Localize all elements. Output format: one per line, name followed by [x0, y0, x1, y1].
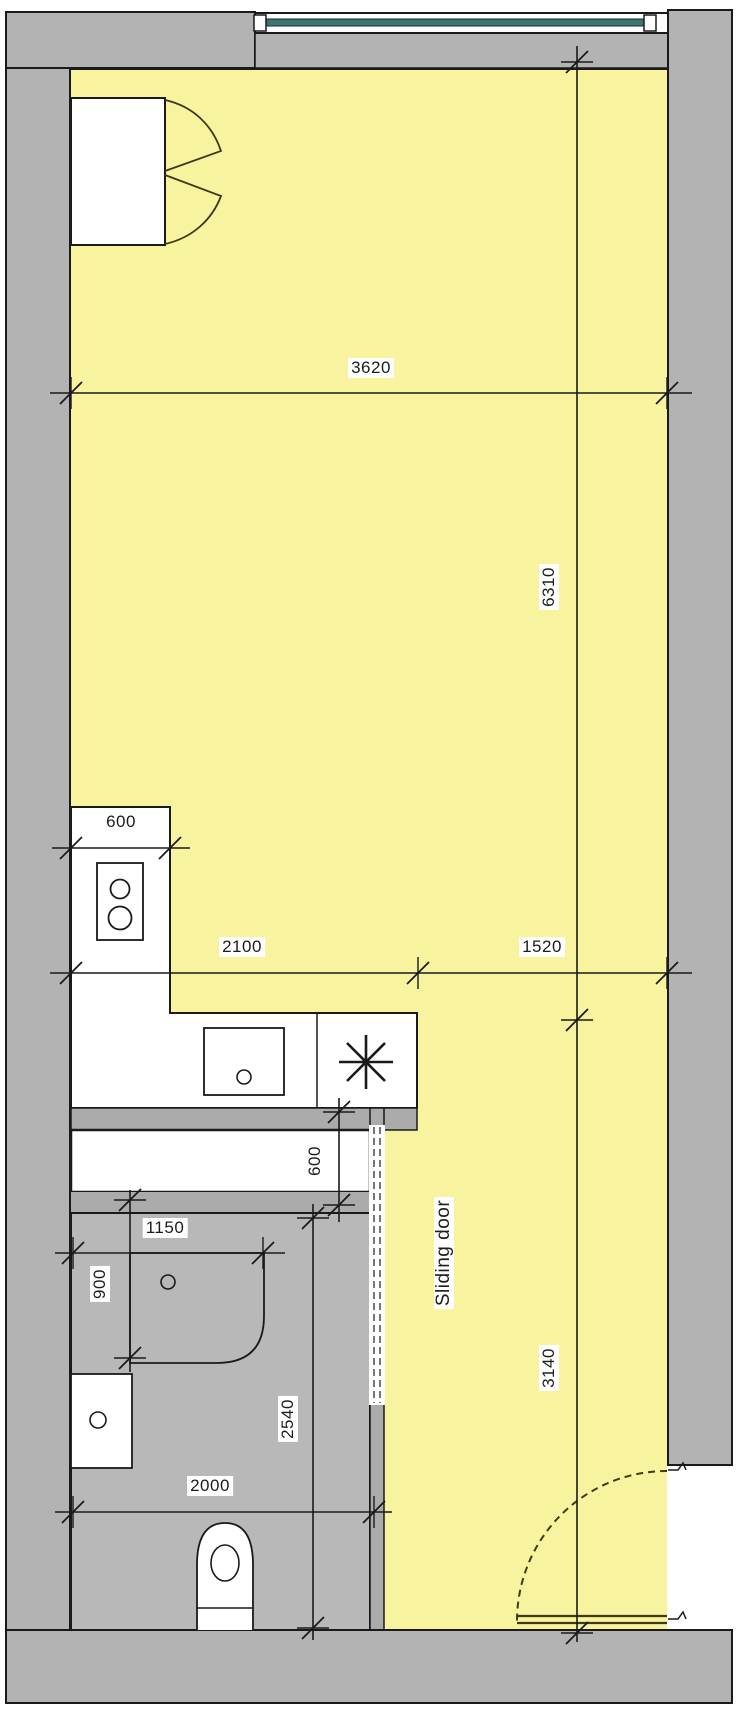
dim-room-width: 3620	[348, 358, 394, 378]
top-wall	[6, 12, 255, 68]
dim-bathroom-length: 2540	[278, 1396, 298, 1442]
floor-plan: 3620 6310 600 2100 1520 600 1150 900 254…	[0, 0, 740, 1710]
door-jamb-marks	[668, 1463, 686, 1619]
bottom-wall	[6, 1630, 732, 1703]
sliding-door-opening	[369, 1125, 385, 1405]
window	[254, 13, 668, 33]
dim-entry-length: 3140	[539, 1345, 559, 1391]
dim-kitchen-left: 2100	[219, 937, 265, 957]
kitchen-bathroom-wall	[71, 1108, 417, 1130]
desk	[71, 1130, 370, 1192]
window-sill-band	[255, 33, 668, 68]
burner-symbol	[339, 1035, 393, 1089]
right-wall	[668, 10, 732, 1465]
floor-plan-drawing	[0, 0, 740, 1710]
dim-room-length: 6310	[539, 564, 559, 610]
dim-shower-depth: 900	[90, 1266, 110, 1302]
dim-shower-width: 1150	[143, 1218, 188, 1238]
toilet	[197, 1523, 253, 1630]
dim-counter-depth: 600	[103, 812, 139, 832]
bathroom-top-strip	[71, 1192, 384, 1213]
window-glass	[263, 19, 645, 26]
dim-desk-depth: 600	[305, 1143, 325, 1179]
dim-bathroom-width: 2000	[187, 1476, 233, 1496]
washbasin	[71, 1374, 132, 1468]
dim-kitchen-right: 1520	[519, 937, 565, 957]
sliding-door-label: Sliding door	[434, 1197, 454, 1309]
